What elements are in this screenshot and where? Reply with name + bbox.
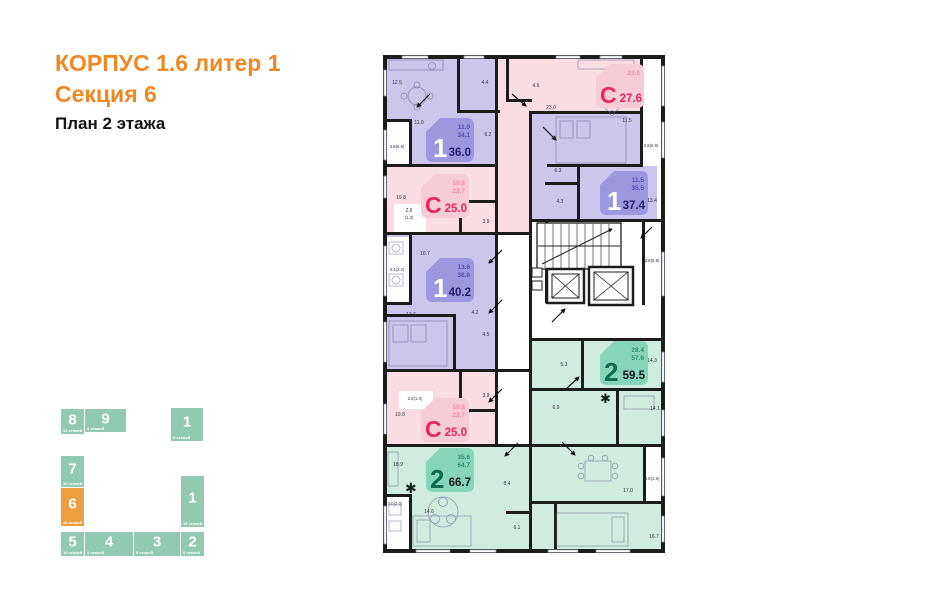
room-area-label: 4.5 bbox=[483, 332, 490, 338]
svg-text:23.7: 23.7 bbox=[452, 188, 465, 195]
studio-icon: С bbox=[425, 416, 442, 442]
svg-text:64.7: 64.7 bbox=[457, 462, 470, 469]
room-count-icon: 2 bbox=[604, 357, 618, 387]
room-count-icon: 1 bbox=[607, 186, 621, 216]
room-count-icon: 1 bbox=[433, 273, 447, 303]
minimap-section-8[interactable]: 810 этажей bbox=[61, 409, 84, 434]
room-area-label: 13.6 bbox=[406, 312, 416, 318]
balcony-area-label: 4.0(2.0) bbox=[388, 501, 403, 506]
svg-text:28.4: 28.4 bbox=[631, 347, 644, 354]
room-count-icon: 1 bbox=[433, 133, 447, 163]
balcony-area-label: 3.8(6.9) bbox=[645, 258, 660, 263]
room-area-label: 4.2 bbox=[472, 310, 479, 316]
apartment-badge-66.7[interactable]: 2 35.6 64.7 66.7 bbox=[426, 448, 474, 494]
svg-text:34.1: 34.1 bbox=[457, 132, 470, 139]
room-area-label: 2.6(1.3) bbox=[408, 396, 423, 401]
room-area-label: 11.0 bbox=[414, 120, 424, 126]
common-corridor bbox=[498, 235, 529, 445]
minimap-section-4[interactable]: 49 этажей bbox=[85, 532, 133, 556]
minimap-section-2[interactable]: 29 этажей bbox=[181, 532, 204, 556]
svg-text:13.6: 13.6 bbox=[457, 264, 470, 271]
svg-text:36.0: 36.0 bbox=[449, 147, 471, 159]
svg-text:23.0: 23.0 bbox=[627, 70, 640, 77]
room-area-label: 4.4 bbox=[482, 80, 489, 86]
plant-icon: ✱ bbox=[600, 391, 611, 406]
room-area-label: 5.3 bbox=[561, 362, 568, 368]
minimap-section-7[interactable]: 710 этажей bbox=[61, 456, 84, 487]
svg-text:25.0: 25.0 bbox=[445, 427, 467, 439]
studio-icon: С bbox=[600, 82, 617, 108]
balcony-area-label: 3.8(1.9) bbox=[645, 476, 660, 481]
room-area-label: 14.3 bbox=[647, 358, 657, 364]
svg-text:25.0: 25.0 bbox=[445, 203, 467, 215]
room-area-label: 18.9 bbox=[393, 462, 403, 468]
svg-text:35.5: 35.5 bbox=[631, 185, 644, 192]
room-area-label: 17.0 bbox=[623, 488, 633, 494]
minimap-section-5[interactable]: 510 этажей bbox=[61, 532, 84, 556]
balcony-area-label: 3.8(6.9) bbox=[390, 144, 405, 149]
room-area-label: 3.9 bbox=[483, 219, 490, 225]
svg-text:23.7: 23.7 bbox=[452, 412, 465, 419]
room-area-label: 14.1 bbox=[650, 406, 660, 412]
balcony bbox=[645, 447, 661, 503]
room-area-label: 11.5 bbox=[622, 118, 632, 124]
elevator-shafts bbox=[532, 267, 633, 305]
room-area-label: 8.4 bbox=[504, 481, 511, 487]
svg-text:11.5: 11.5 bbox=[632, 177, 645, 184]
room-area-label: 16.7 bbox=[649, 534, 659, 540]
svg-text:66.7: 66.7 bbox=[449, 477, 471, 489]
minimap-section-9[interactable]: 99 этажей bbox=[85, 409, 126, 432]
room-area-label: 6.2 bbox=[485, 132, 492, 138]
svg-text:57.6: 57.6 bbox=[631, 355, 644, 362]
room-area-label: 12.5 bbox=[392, 80, 402, 86]
room-area-label: 4.6 bbox=[533, 83, 540, 89]
svg-text:19.8: 19.8 bbox=[452, 180, 465, 187]
svg-text:59.5: 59.5 bbox=[623, 370, 646, 382]
studio-icon: С bbox=[425, 192, 442, 218]
room-area-label: 4.3 bbox=[557, 199, 564, 205]
room-area-label: 2.6 bbox=[406, 208, 413, 214]
svg-text:11.0: 11.0 bbox=[458, 124, 471, 131]
room-area-label: 6.1 bbox=[514, 525, 521, 531]
room-area-label: 14.6 bbox=[424, 509, 434, 515]
balcony bbox=[642, 59, 661, 166]
minimap-section-3[interactable]: 39 этажей bbox=[134, 532, 180, 556]
balcony-area-label: 4.4(2.2) bbox=[390, 267, 405, 272]
minimap-section-1-right[interactable]: 118 этажей bbox=[181, 476, 204, 527]
section-title: Секция 6 bbox=[55, 79, 281, 110]
apartment-badge-59.5[interactable]: 2 28.4 57.6 59.5 bbox=[600, 341, 648, 387]
staircase bbox=[537, 223, 621, 269]
room-area-label: 13.4 bbox=[647, 198, 657, 204]
plant-icon: ✱ bbox=[405, 480, 417, 496]
building-title: КОРПУС 1.6 литер 1 bbox=[55, 48, 281, 79]
studio-corridor bbox=[497, 113, 529, 235]
floor-subtitle: План 2 этажа bbox=[55, 114, 281, 134]
balcony bbox=[644, 222, 661, 305]
room-area-label: 19.8 bbox=[395, 412, 405, 418]
minimap-section-1-top[interactable]: 19 этажей bbox=[171, 408, 203, 441]
room-area-label: 16.7 bbox=[420, 251, 430, 257]
floorplan: 12.5 4.4 11.0 3.8(6.9) 6.2 4.6 23.0 3.8(… bbox=[383, 55, 665, 553]
svg-text:38.0: 38.0 bbox=[457, 272, 470, 279]
room-area-label: 19.8 bbox=[396, 195, 406, 201]
svg-text:40.2: 40.2 bbox=[449, 287, 471, 299]
svg-text:19.8: 19.8 bbox=[452, 404, 465, 411]
floor-plan-page: КОРПУС 1.6 литер 1 Секция 6 План 2 этажа… bbox=[0, 0, 941, 600]
room-area-label: 6.3 bbox=[555, 168, 562, 174]
svg-text:37.4: 37.4 bbox=[623, 200, 646, 212]
room-area-label: 3.9 bbox=[483, 393, 490, 399]
minimap-section-6-active[interactable]: 610 этажей bbox=[61, 488, 84, 526]
room-area-label: 6.9 bbox=[553, 405, 560, 411]
balcony-area-label: 3.8(6.9) bbox=[644, 143, 659, 148]
room-count-icon: 2 bbox=[430, 464, 444, 494]
svg-text:27.6: 27.6 bbox=[620, 93, 642, 105]
svg-text:35.6: 35.6 bbox=[457, 454, 470, 461]
room-area-label: 23.0 bbox=[546, 105, 556, 111]
page-header: КОРПУС 1.6 литер 1 Секция 6 План 2 этажа bbox=[55, 48, 281, 134]
room-area-label: (1.3) bbox=[405, 215, 414, 220]
